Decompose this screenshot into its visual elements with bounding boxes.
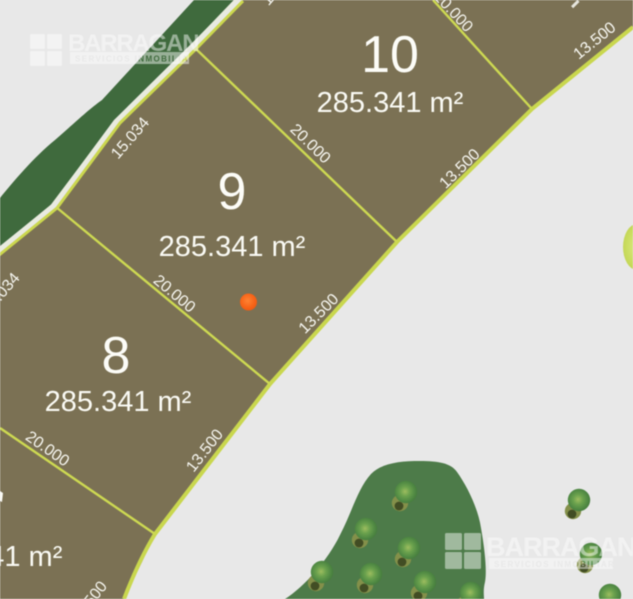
svg-text:285.341 m²: 285.341 m² <box>317 87 464 119</box>
svg-text:10: 10 <box>361 26 419 84</box>
svg-text:8: 8 <box>102 327 131 385</box>
svg-text:285.341 m²: 285.341 m² <box>45 386 192 418</box>
svg-text:BARRAGAN: BARRAGAN <box>486 532 633 562</box>
svg-text:285.341 m²: 285.341 m² <box>0 541 63 573</box>
svg-text:285.341 m²: 285.341 m² <box>159 231 306 263</box>
svg-text:9: 9 <box>218 163 247 221</box>
